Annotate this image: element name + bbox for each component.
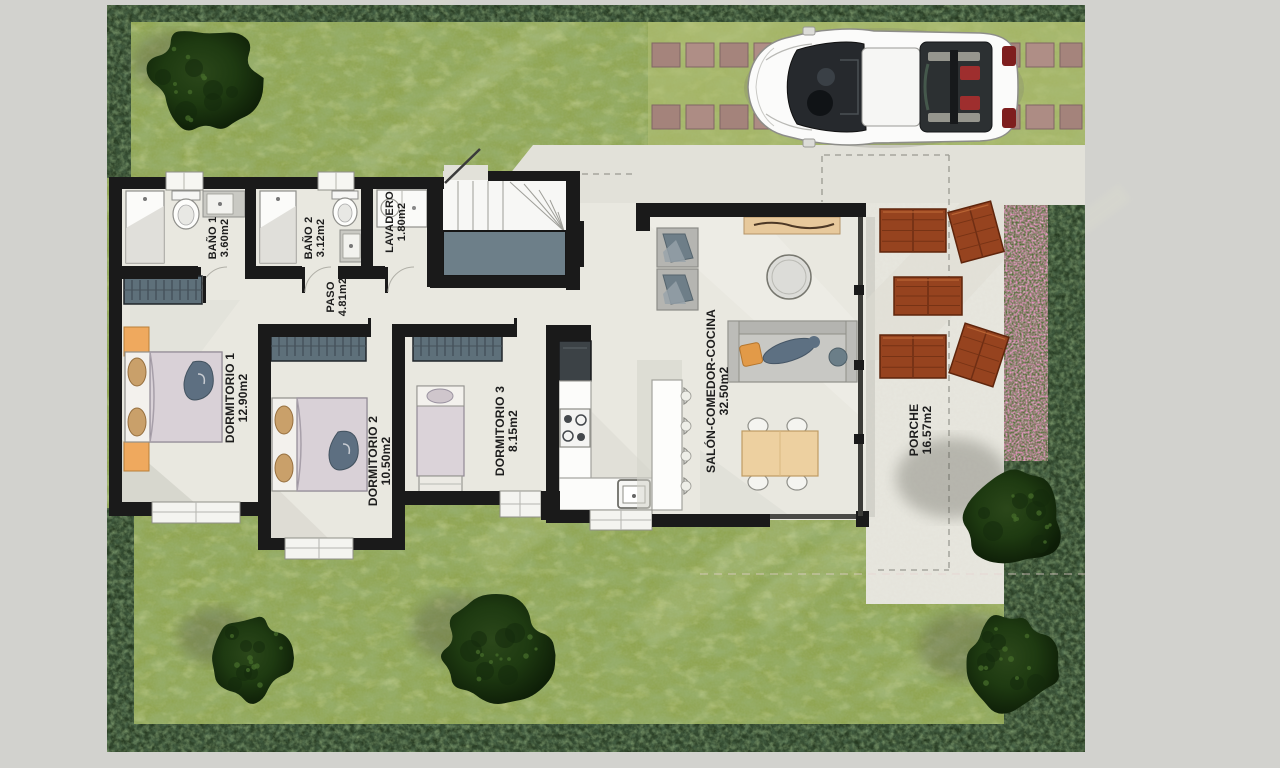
svg-text:BAÑO 23.12m2: BAÑO 23.12m2: [302, 217, 327, 260]
svg-text:PASO4.81m2: PASO4.81m2: [325, 278, 349, 317]
svg-text:PORCHE16.57m2: PORCHE16.57m2: [907, 404, 934, 457]
svg-text:BAÑO 13.60m2: BAÑO 13.60m2: [206, 217, 231, 260]
